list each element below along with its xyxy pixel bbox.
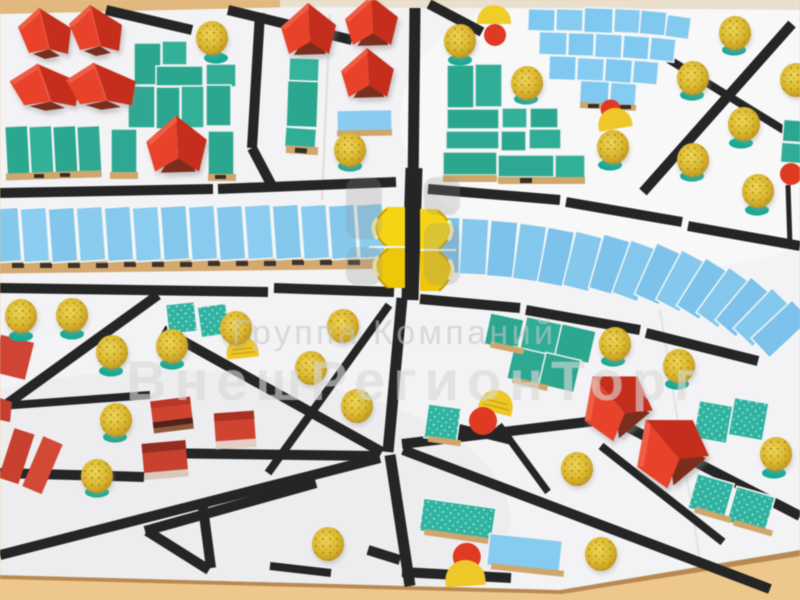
svg-text:ВнешРегионТорг: ВнешРегионТорг [126, 349, 705, 412]
svg-text:Группа Компаний: Группа Компаний [232, 314, 556, 352]
